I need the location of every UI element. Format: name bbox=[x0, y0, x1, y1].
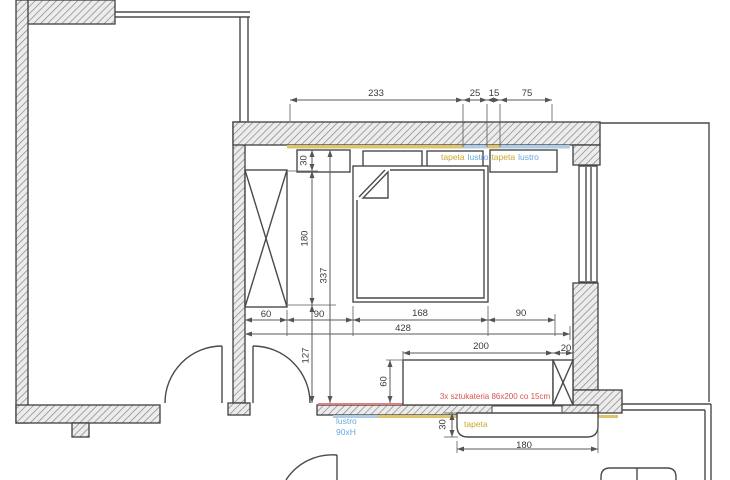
dim-bench-200: 200 bbox=[464, 341, 498, 352]
dim-sofa-30: 30 bbox=[438, 408, 449, 442]
dim-top-15: 15 bbox=[477, 88, 511, 99]
wallpaper-strip-top-2 bbox=[487, 145, 500, 149]
dim-bench-20: 20 bbox=[549, 343, 583, 354]
wallpaper-note: tapeta bbox=[464, 419, 488, 430]
mirror-note-line2: 90xH bbox=[336, 427, 357, 438]
mirror-note: lustro 90xH bbox=[336, 416, 357, 437]
dim-left-127: 127 bbox=[301, 339, 312, 373]
wall-left bbox=[16, 0, 28, 423]
dim-bottom-90-left: 90 bbox=[302, 309, 336, 320]
wall-top bbox=[233, 122, 600, 145]
wallpaper-label-1: tapeta bbox=[441, 152, 465, 163]
dim-bottom-60: 60 bbox=[249, 309, 283, 320]
wallpaper-strip-top-1 bbox=[287, 145, 463, 149]
dim-top-233: 233 bbox=[359, 88, 393, 99]
door-arc-left bbox=[165, 346, 222, 403]
wall-bedroom-left bbox=[233, 122, 245, 403]
wall-door-pier bbox=[228, 403, 250, 415]
seat-bottom-right bbox=[601, 468, 676, 480]
wall-right-pier-bottom bbox=[573, 283, 598, 390]
dim-top-75: 75 bbox=[510, 88, 544, 99]
mirror-label-1: lustro bbox=[468, 152, 489, 163]
mirror-strip-top-1 bbox=[463, 145, 487, 149]
wall-top-left bbox=[18, 0, 115, 24]
dim-left-180: 180 bbox=[300, 222, 311, 256]
dim-sofa-180: 180 bbox=[507, 440, 541, 451]
dim-left-30: 30 bbox=[299, 144, 310, 178]
floor-plan-drawing bbox=[0, 0, 730, 480]
dim-left-337: 337 bbox=[319, 259, 330, 293]
wallpaper-label-2: tapeta bbox=[491, 152, 515, 163]
mirror-note-line1: lustro bbox=[336, 416, 357, 427]
dim-bed-90-right: 90 bbox=[504, 308, 538, 319]
headboard-finish-labels: tapeta lustro tapeta lustro bbox=[441, 152, 539, 163]
adjacent-room-outline bbox=[600, 123, 709, 402]
wall-right-pier-top bbox=[573, 145, 600, 165]
door-arc-bottom bbox=[286, 455, 337, 480]
dim-total-428: 428 bbox=[386, 323, 420, 334]
dim-bed-168: 168 bbox=[403, 308, 437, 319]
mirror-strip-top-2 bbox=[500, 145, 570, 149]
wall-bottom-left bbox=[16, 405, 160, 423]
stucco-note: 3x sztukateria 86x200 co 15cm bbox=[430, 391, 560, 402]
mirror-label-2: lustro bbox=[518, 152, 539, 163]
floor-plan-canvas: 233 25 15 75 30 180 127 337 60 90 168 90… bbox=[0, 0, 730, 480]
dim-bench-60: 60 bbox=[379, 365, 390, 399]
wall-step-block bbox=[72, 423, 89, 437]
